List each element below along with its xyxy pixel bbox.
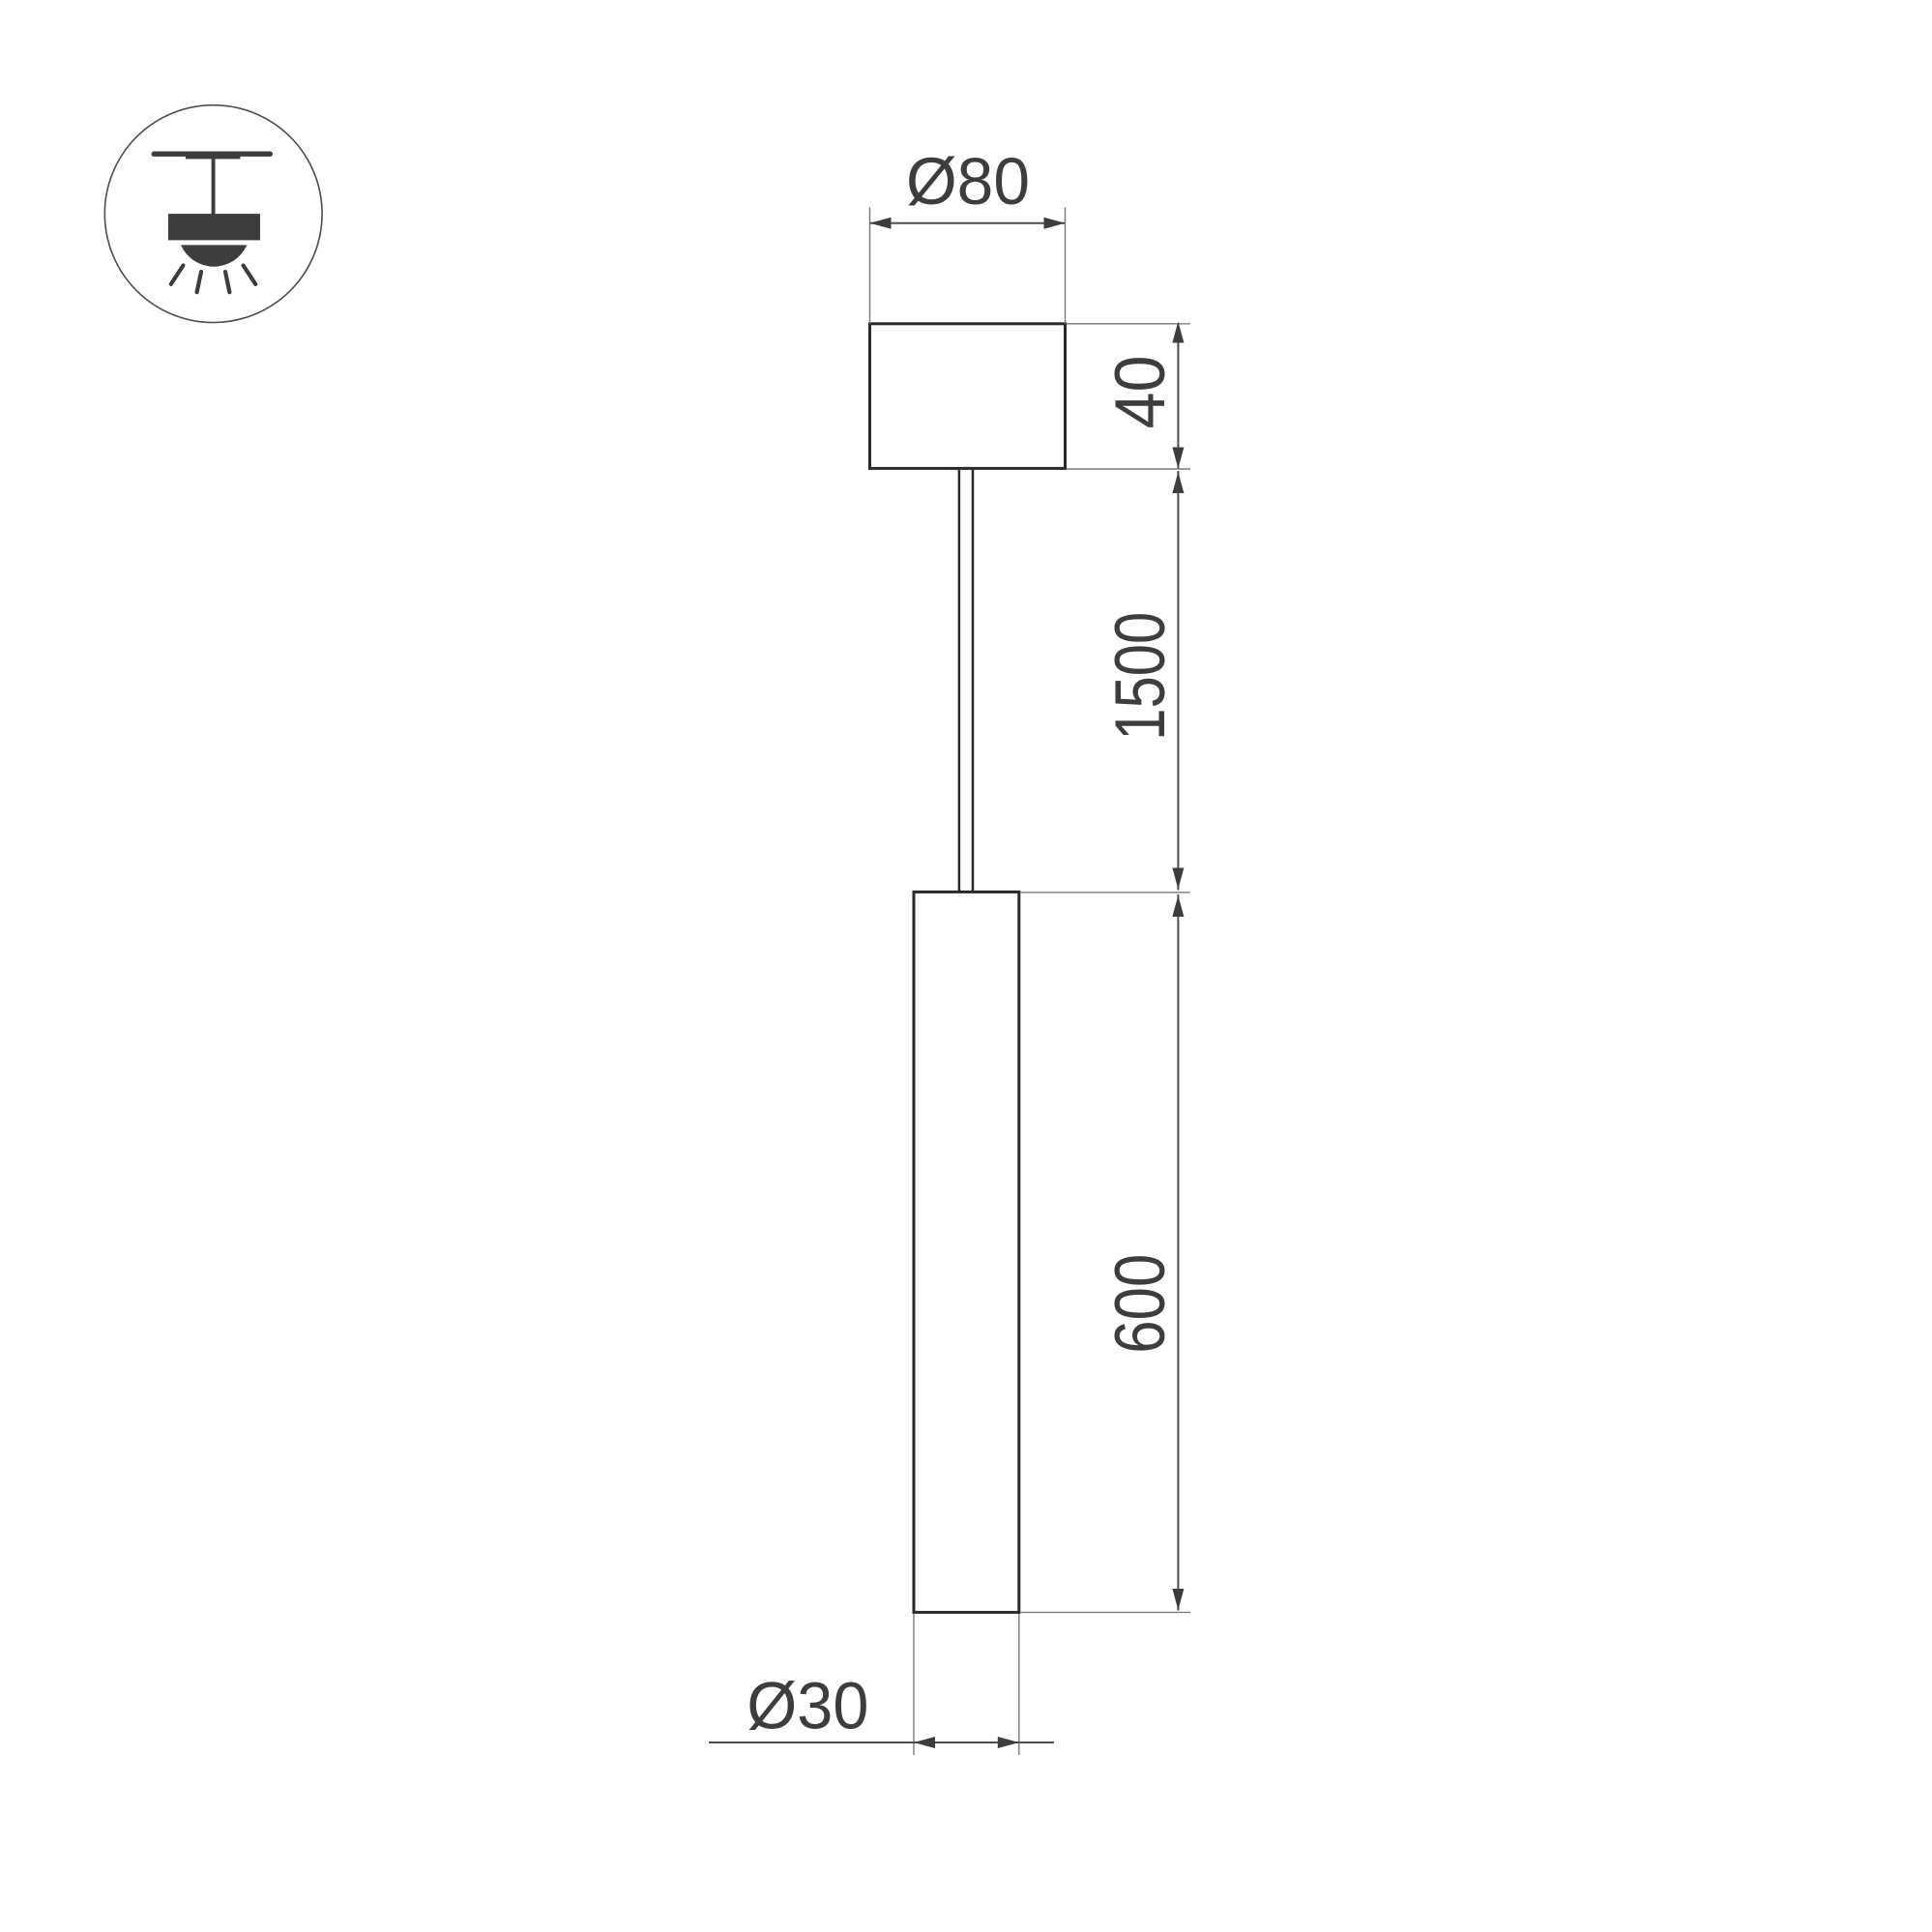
svg-text:Ø80: Ø80 — [906, 144, 1030, 219]
svg-text:600: 600 — [1101, 1254, 1180, 1354]
svg-text:1500: 1500 — [1101, 612, 1180, 741]
svg-text:40: 40 — [1101, 356, 1180, 429]
svg-text:Ø30: Ø30 — [746, 1669, 868, 1743]
